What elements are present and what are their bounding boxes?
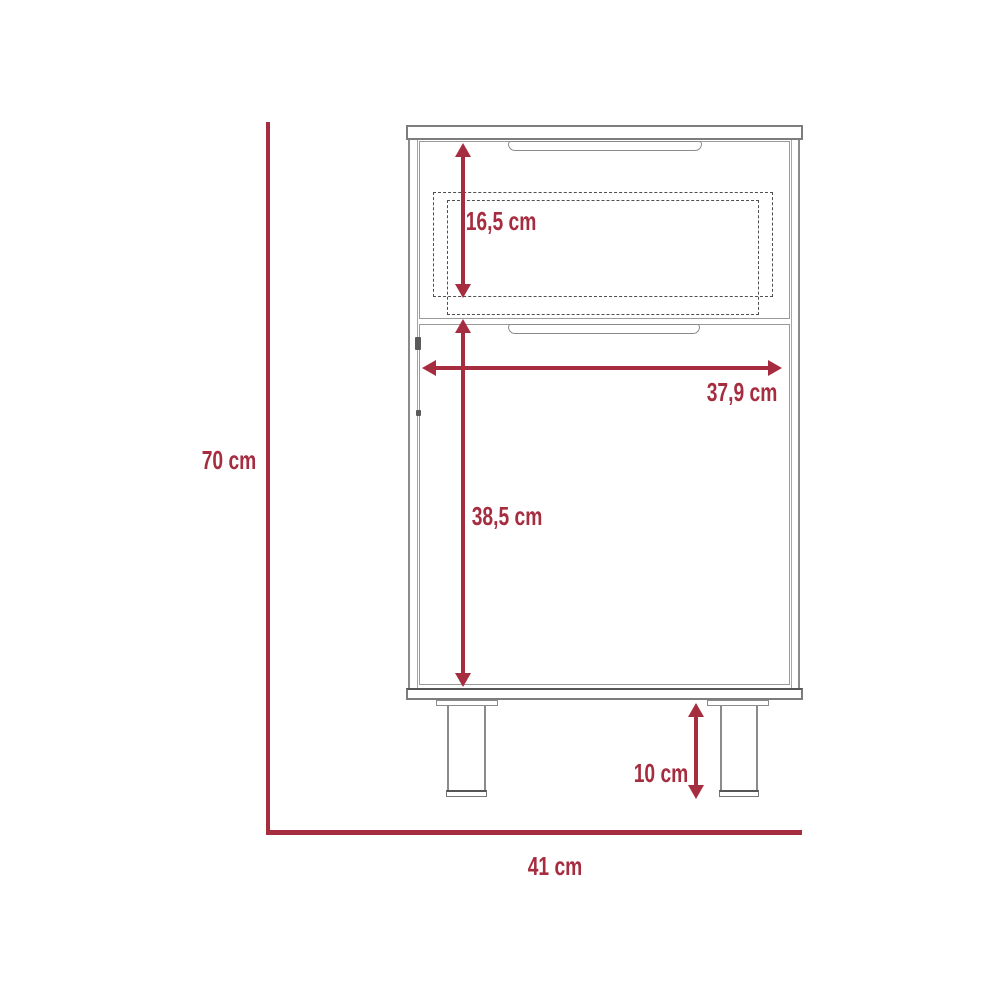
cabinet-top-panel xyxy=(406,125,803,140)
leg-height-arrow xyxy=(694,716,698,786)
door-height-label: 38,5 cm xyxy=(472,503,543,529)
right-leg-foot xyxy=(719,790,759,797)
cabinet-bottom-panel xyxy=(406,688,803,700)
interior-width-label: 37,9 cm xyxy=(707,379,778,405)
dimension-diagram: 70 cm 41 cm 16,5 cm 37,9 cm 38,5 cm 10 c… xyxy=(0,0,1000,1000)
door-height-arrow xyxy=(461,332,465,674)
door-handle xyxy=(508,324,700,334)
overall-height-label: 70 cm xyxy=(202,447,257,473)
drawer-height-label: 16,5 cm xyxy=(466,208,537,234)
left-leg xyxy=(447,706,486,790)
left-leg-foot xyxy=(446,790,487,797)
drawer-height-arrow xyxy=(461,156,465,285)
overall-height-extension-line xyxy=(266,122,270,833)
right-side-panel-inner-line xyxy=(791,140,792,688)
door-hinge-lower xyxy=(416,410,421,416)
leg-height-label: 10 cm xyxy=(634,760,689,786)
door-hinge-upper xyxy=(415,337,421,350)
overall-width-extension-line xyxy=(266,830,802,835)
drawer-handle xyxy=(508,141,702,151)
interior-width-arrow xyxy=(435,366,769,370)
overall-width-label: 41 cm xyxy=(528,853,583,879)
right-leg xyxy=(720,706,758,790)
